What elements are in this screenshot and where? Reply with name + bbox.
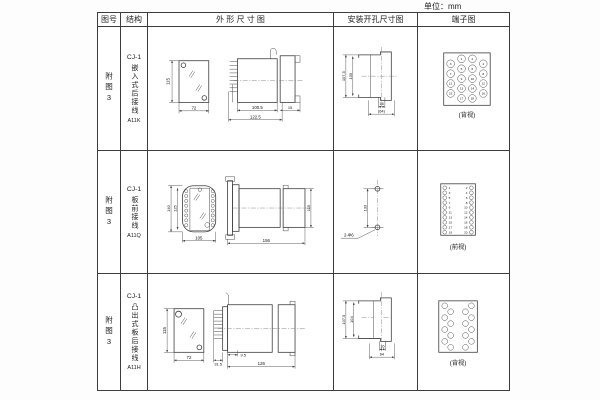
terminal-number: 1 [461,57,463,61]
glass-hatch [194,194,206,220]
dim-label-height2: 125 [173,204,178,211]
terminal-pins [230,62,238,92]
terminal-number: 5 [449,196,451,200]
terminal-drawing-a11k: 1 2 3 4 5 6 7 8 9 10 11 12 13 14 15 16 1… [418,27,509,150]
dim-label-height: 115 [162,326,167,334]
struct-label: 嵌入式后接线 [129,64,139,115]
terminal-number: 4 [482,62,484,66]
model-label: CJ-1 [127,293,141,300]
unit-label: 单位：mm [424,1,461,12]
side-view: 9.5 31.5 126 [214,293,305,369]
terminal-number: 9 [449,206,451,210]
dim-label-depth1: 156 [263,238,271,243]
terminal-number: 13 [460,87,464,91]
mount-drawing-a11k: 107.5 105 16 (64) [334,27,417,150]
terminal-pins [214,311,223,339]
terminal-number: 20 [464,230,468,234]
dim-label-h1: 107.5 [341,314,346,325]
terminal-number: 14 [471,87,475,91]
row1-fig-cell: 附图3 [98,27,121,151]
spec-table: 图号 结构 外 形 尺 寸 图 安装开孔尺寸图 端子图 附图3 CJ-1 嵌入式… [97,12,510,391]
outline-drawing-a11k: 115 72 100.5 122.5 [148,27,333,150]
terminal-number: 9 [461,77,463,81]
dim-label-depth3: 126 [258,361,266,366]
row1-mount-cell: 107.5 105 16 (64) [334,27,418,151]
mount-hook [270,48,276,58]
row2-mount-cell: 133 2-Φ6 [334,151,418,274]
glass-hatch [181,318,196,339]
terminal-pins [442,303,474,350]
dim-label-w2: (64) [378,109,386,114]
dim-label-w1: 16 [379,101,384,106]
dim-label-width: 72 [187,355,192,360]
page: { "unit_label": "单位：mm", "header": { "fi… [0,0,600,400]
row3-mount-cell: 107.5 104 16 64 [334,274,418,391]
terminal-number: 3 [449,191,451,195]
terminal-number: 18 [464,226,468,230]
terminal-numbers: 1 3 5 7 9 11 13 15 17 19 2 4 6 8 10 12 1… [449,186,468,235]
dim-label-w2: 64 [380,352,385,357]
code-label: A11K [127,118,140,124]
header-cell-outline: 外 形 尺 寸 图 [148,13,334,27]
row3-fig-cell: 附图3 [98,274,121,391]
terminal-number: 8 [482,72,484,76]
dim-label-depth2: 122.5 [250,114,261,119]
terminal-drawing-a11h: (背视) [418,274,509,390]
dim-label-w1: 16 [380,344,385,349]
dim-label-width: 105 [195,235,203,240]
fig-number: 附图3 [104,316,115,349]
view-label: (背视) [459,111,476,119]
dim-label-depth2: 9.5 [241,352,247,357]
fig-number: 附图3 [104,72,115,105]
dim-label-h2: 105 [348,72,353,79]
terminal-number: 10 [464,206,468,210]
terminal-number: 18 [471,97,475,101]
model-label: CJ-1 [127,186,141,193]
view-label: (前视) [450,243,467,251]
code-label: A11H [127,365,140,371]
row3-struct-cell: CJ-1 凸出式板后接线 A11H [121,274,148,391]
terminal-number: 16 [482,92,486,96]
dim-label-depth3: 15 [288,105,293,110]
terminal-number: 17 [460,97,464,101]
row3-terminal-cell: (背视) [418,274,510,391]
dim-label-h2: 104 [349,316,354,323]
terminal-number: 2 [472,57,474,61]
terminal-number: 19 [449,230,453,234]
terminal-number: 7 [450,72,452,76]
row1-struct-cell: CJ-1 嵌入式后接线 A11K [121,27,148,151]
front-view: 115 72 [162,309,204,363]
glass-hatch [189,71,202,92]
front-view: 140 125 105 [166,186,216,243]
dim-label-depth1: 31.5 [214,362,222,367]
row2-fig-cell: 附图3 [98,151,121,274]
row1-terminal-cell: 1 2 3 4 5 6 7 8 9 10 11 12 13 14 15 16 1… [418,27,510,151]
terminal-number: 6 [466,196,468,200]
fig-number: 附图3 [104,196,115,229]
dim-label-height: 140 [166,204,171,211]
view-label: (背视) [450,359,467,367]
mount-drawing-a11q: 133 2-Φ6 [334,151,417,273]
outline-drawing-a11h: 115 72 9.5 31.5 [148,274,333,390]
dim-label-depth1: 100.5 [252,105,263,110]
hole-spec-label: 2-Φ6 [344,233,354,238]
terminal-pins [443,186,473,234]
row1-outline-cell: 115 72 100.5 122.5 [148,27,334,151]
outline-drawing-a11q: 140 125 105 156 115 [148,151,333,273]
terminal-number: 14 [464,216,468,220]
header-cell-terminal: 端子图 [418,13,510,27]
row3-outline-cell: 115 72 9.5 31.5 [148,274,334,391]
model-label: CJ-1 [127,54,141,61]
mount-hook [226,293,229,305]
terminal-number: 16 [464,221,468,225]
terminal-number: 3 [450,62,452,66]
terminal-number: 1 [449,186,451,190]
dim-label-width: 72 [191,105,196,110]
terminal-number: 15 [449,92,453,96]
row2-outline-cell: 140 125 105 156 115 [148,151,334,274]
terminal-number: 11 [449,82,452,86]
terminal-number: 8 [466,201,468,205]
terminal-number: 7 [449,201,451,205]
row2-struct-cell: CJ-1 板前接线 A11Q [121,151,148,274]
header-cell-mount: 安装开孔尺寸图 [334,13,418,27]
dim-label-depth2: 115 [306,204,311,211]
row2-terminal-cell: 1 3 5 7 9 11 13 15 17 19 2 4 6 8 10 12 1… [418,151,510,274]
header-cell-struct: 结构 [121,13,148,27]
dim-label-pitch: 133 [363,204,368,211]
terminal-number: 13 [449,216,453,220]
terminal-number: 12 [464,211,468,215]
struct-label: 凸出式板后接线 [129,303,139,363]
terminal-number: 10 [471,77,475,81]
terminal-number: 12 [482,82,486,86]
code-label: A11Q [127,233,141,239]
terminal-drawing-a11q: 1 3 5 7 9 11 13 15 17 19 2 4 6 8 10 12 1… [418,151,509,273]
terminal-number: 4 [466,191,468,195]
terminal-number: 15 [449,221,453,225]
terminal-number: 6 [472,67,474,71]
mount-drawing-a11h: 107.5 104 16 64 [334,274,417,390]
side-view: 156 115 [226,177,314,245]
dim-label-height: 115 [166,78,171,86]
side-view: 100.5 122.5 15 [229,48,303,121]
header-cell-fig: 图号 [98,13,121,27]
terminal-number: 2 [466,186,468,190]
terminal-number: 5 [461,67,463,71]
dim-label-h1: 107.5 [341,70,346,81]
terminal-number: 17 [449,226,453,230]
struct-label: 板前接线 [129,196,139,230]
front-view: 115 72 [166,61,209,114]
terminal-number: 11 [449,211,452,215]
